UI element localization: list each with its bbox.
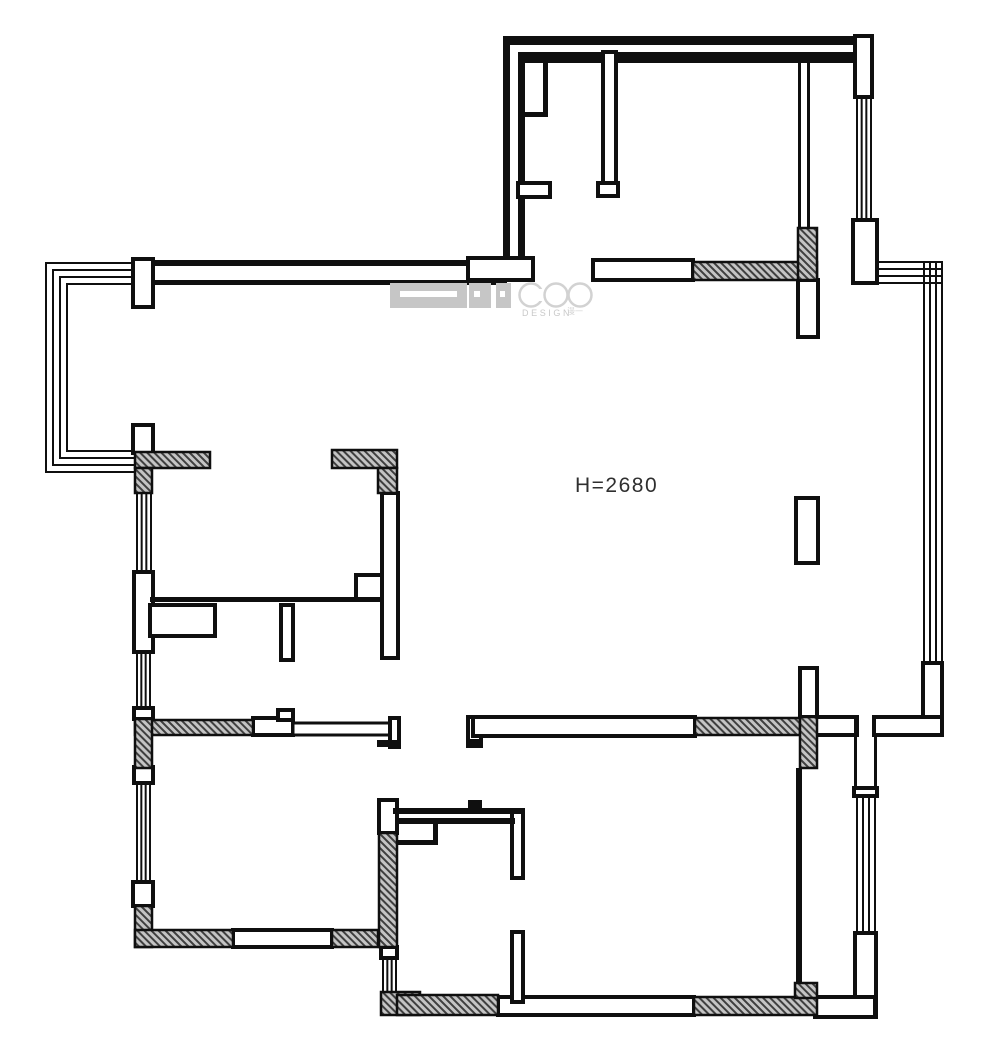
logo-block-mid-slot xyxy=(474,291,480,297)
corridor-wall-east-b xyxy=(874,717,942,735)
bedroom-bottom-wall-white xyxy=(498,997,694,1015)
corridor-east-hatch xyxy=(695,718,800,735)
corner-window-vertical-line xyxy=(929,261,931,663)
bath-niche-right-line xyxy=(433,818,438,845)
logo-design-text: DESIGN xyxy=(522,308,572,318)
bay-window-top-line-4 xyxy=(66,283,135,285)
left-window-1-line xyxy=(136,493,138,572)
north-room-top-inner-line xyxy=(518,52,857,63)
left-window-3-line xyxy=(140,783,142,882)
duct-shaft-right-line xyxy=(543,63,548,117)
southwest-bottom-hatch-b xyxy=(332,930,378,947)
southwest-bottom-wall-white xyxy=(233,930,332,947)
balcony-bottom-wall xyxy=(815,997,875,1017)
bath-window-line xyxy=(395,958,397,992)
north-room-left-wall-inner xyxy=(518,52,525,270)
bay-window-bottom-line-3 xyxy=(59,457,135,459)
living-divider-piece-2 xyxy=(796,498,818,563)
left-window-3-line xyxy=(149,783,151,882)
kitchen-corner-box xyxy=(356,575,382,600)
bath-right-wall-lower xyxy=(512,932,523,1002)
balcony-corner-hatch xyxy=(795,983,817,998)
logo-block-large-slot xyxy=(400,291,457,297)
north-room-right-wall-bottom xyxy=(853,220,877,283)
north-room-divider-line-a xyxy=(798,52,801,228)
north-room-right-window-line xyxy=(856,97,858,220)
balcony-door-side-line-b xyxy=(874,735,877,790)
bay-window-left-line-2 xyxy=(52,269,54,466)
kitchen-corner-hatch-v xyxy=(378,468,397,493)
corner-window-vertical-line xyxy=(923,261,925,663)
bay-window-bottom-line-4 xyxy=(66,450,135,452)
ceiling-height-label: H=2680 xyxy=(575,474,658,497)
left-window-3-line xyxy=(145,783,147,882)
bay-window-left-line-1 xyxy=(45,262,47,473)
north-room-top-wall xyxy=(507,36,872,45)
bay-window-left-line-4 xyxy=(66,283,68,452)
left-window-3-line xyxy=(136,783,138,882)
left-window-2-line xyxy=(136,652,138,709)
north-room-bottom-wall xyxy=(593,260,693,280)
north-room-partition xyxy=(603,52,616,183)
bay-window-top-line-1 xyxy=(45,262,135,264)
north-room-pier-hatch xyxy=(798,228,817,280)
corner-window-vertical-line xyxy=(941,261,943,663)
left-wall-cap-a xyxy=(134,708,153,719)
bedroom-bottom-hatch xyxy=(694,997,817,1015)
bath-left-wall-hatch xyxy=(379,833,397,947)
corner-window-horizontal-line xyxy=(875,275,943,277)
bath-window-line xyxy=(382,958,384,992)
southwest-corner-hatch-h xyxy=(135,452,210,468)
north-room-closet-stub xyxy=(518,183,550,197)
balcony-window-line xyxy=(862,796,864,933)
corner-window-horizontal-line xyxy=(875,268,943,270)
corner-window-horizontal-line xyxy=(875,282,943,284)
north-room-right-window-line xyxy=(861,97,863,220)
north-room-divider-line-b xyxy=(807,52,810,228)
bath-window-line xyxy=(391,958,393,992)
balcony-window-line xyxy=(874,796,876,933)
living-divider-piece-1 xyxy=(798,280,818,337)
kitchen-corner-hatch-h xyxy=(332,450,397,468)
corridor-wall-west-bump xyxy=(278,710,293,720)
left-window-1-line xyxy=(141,493,143,572)
southwest-corner-hatch-v xyxy=(135,468,152,493)
bath-niche-bottom-line xyxy=(398,840,438,845)
logo-seal-text: 漫一 xyxy=(567,306,583,316)
bath-bottom-hatch xyxy=(397,995,498,1015)
bath-top-wall-outer xyxy=(393,808,523,814)
left-window-2-line xyxy=(140,652,142,709)
bay-window-bottom-line-2 xyxy=(52,464,135,466)
north-room-right-window-line xyxy=(865,97,867,220)
floor-plan: DESIGN 漫一 H=2680 xyxy=(0,0,1000,1056)
top-wall-outer-line xyxy=(135,260,507,266)
bath-top-wall-bump xyxy=(468,800,482,808)
living-divider-piece-3 xyxy=(800,668,817,717)
left-window-1-line xyxy=(145,493,147,572)
southwest-bottom-hatch-a xyxy=(135,930,233,947)
bay-window-top-line-2 xyxy=(52,269,135,271)
bay-window-jamb-bottom xyxy=(133,425,153,453)
left-wall-cap-b xyxy=(134,767,153,783)
balcony-window-line xyxy=(868,796,870,933)
corridor-pier-hatch xyxy=(800,717,817,768)
bath-top-wall-inner xyxy=(398,818,515,824)
sliding-door-leaf xyxy=(293,723,390,735)
bath-left-wall-cap xyxy=(381,947,397,958)
corridor-wall-east-a xyxy=(813,717,857,735)
left-window-1-line xyxy=(150,493,152,572)
balcony-left-wall xyxy=(796,768,802,983)
kitchen-stub xyxy=(281,605,293,660)
bay-window-pier xyxy=(133,259,153,307)
logo-block-small-slot xyxy=(500,291,505,297)
bay-window-left-line-3 xyxy=(59,276,61,459)
left-wall-cap-c xyxy=(133,882,153,906)
kitchen-bottom-wall-line xyxy=(150,597,382,602)
north-room-right-wall-top xyxy=(855,36,872,97)
corridor-wall-mid-band xyxy=(473,717,695,736)
north-room-left-wall-outer xyxy=(503,36,510,263)
kitchen-right-wall xyxy=(382,493,398,658)
bath-window-line xyxy=(386,958,388,992)
floor-plan-svg: DESIGN 漫一 H=2680 xyxy=(0,0,1000,1056)
balcony-door-cap xyxy=(854,788,877,796)
north-room-right-window-line xyxy=(870,97,872,220)
balcony-window-line xyxy=(856,796,858,933)
north-room-partition-foot xyxy=(598,183,618,196)
left-wall-mid-hatch xyxy=(135,719,152,768)
west-jamb-foot xyxy=(377,740,399,747)
corner-window-horizontal-line xyxy=(875,261,943,263)
bay-window-bottom-line-1 xyxy=(45,471,135,473)
bath-left-wall-top xyxy=(379,800,397,833)
left-window-2-line xyxy=(145,652,147,709)
left-window-2-line xyxy=(149,652,151,709)
kitchen-counter-box xyxy=(150,605,215,636)
corner-window-vertical-line xyxy=(935,261,937,663)
bay-window-top-line-3 xyxy=(59,276,135,278)
north-room-door-jamb xyxy=(468,258,533,280)
balcony-door-side-line-a xyxy=(854,717,857,790)
east-jamb-foot xyxy=(468,739,482,746)
